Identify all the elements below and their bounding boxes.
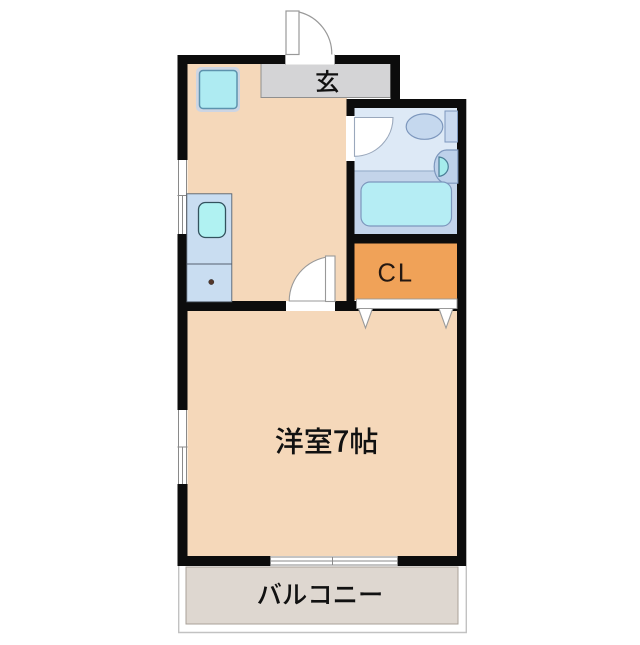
svg-text:CL: CL [378,260,415,288]
